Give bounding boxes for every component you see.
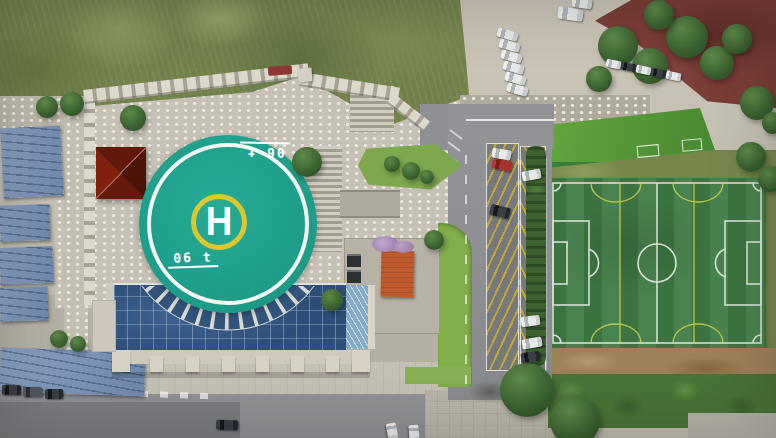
penalty-area-left xyxy=(553,221,589,305)
car xyxy=(2,385,21,396)
facade-corner xyxy=(352,350,370,372)
tree xyxy=(736,142,766,172)
pitch-markings xyxy=(548,178,766,348)
car xyxy=(408,425,419,438)
large-tree xyxy=(550,396,600,438)
atrium-west-annex xyxy=(92,300,116,352)
car xyxy=(216,420,238,430)
penalty-arc-left xyxy=(589,249,599,277)
weight-marking-top-rotated: 06 t xyxy=(240,142,290,161)
penalty-area-right xyxy=(725,221,761,305)
tree xyxy=(70,336,86,352)
red-bench xyxy=(268,65,293,76)
rooftop-unit xyxy=(637,144,660,158)
facade-pillar xyxy=(150,356,163,372)
west-boundary-wall xyxy=(84,100,95,305)
facade-pillar xyxy=(186,356,199,372)
bush xyxy=(424,230,444,250)
aerial-photo: H 06 t 06 t xyxy=(0,0,776,438)
bush xyxy=(384,156,400,172)
tree xyxy=(586,66,612,92)
facade-pillar xyxy=(326,356,339,372)
bush xyxy=(321,289,343,311)
tree xyxy=(292,147,322,177)
penalty-arc-right xyxy=(715,249,725,277)
blue-shed-roof xyxy=(0,125,64,198)
facade-pillar xyxy=(256,356,269,372)
blue-shed-roof xyxy=(0,204,51,242)
tree xyxy=(722,24,752,54)
bush xyxy=(402,162,420,180)
road-shadow xyxy=(0,402,240,438)
tree xyxy=(50,330,68,348)
facade-corner xyxy=(112,350,130,372)
orange-tiled-structure xyxy=(381,251,415,298)
facade-pillar xyxy=(222,356,235,372)
tree xyxy=(666,16,708,58)
rooftop-unit xyxy=(682,138,703,152)
helipad-h-marking: H xyxy=(198,196,240,246)
glass-atrium-east-wing xyxy=(346,285,368,349)
tree xyxy=(120,105,146,131)
car xyxy=(23,387,42,397)
atrium-east-frame xyxy=(368,285,375,349)
weight-marking-bottom: 06 t xyxy=(168,249,219,269)
tree xyxy=(36,96,58,118)
facade-pillar xyxy=(291,356,304,372)
wall-tower xyxy=(297,67,312,82)
football-field xyxy=(548,178,766,348)
rooftop-vent-unit xyxy=(347,254,361,267)
facade-shadow xyxy=(112,372,370,378)
corner-pavement xyxy=(688,413,776,438)
bush xyxy=(420,170,434,184)
blue-shed-roof xyxy=(0,246,54,285)
tree xyxy=(644,0,674,30)
goal-area-right xyxy=(747,242,761,284)
car xyxy=(45,389,63,399)
pavilion-ridge xyxy=(96,147,146,199)
tree xyxy=(60,92,84,116)
large-tree xyxy=(500,363,554,417)
purple-blossom-tree xyxy=(392,241,414,253)
blue-shed-roof xyxy=(0,286,49,322)
walkway-bridge xyxy=(340,190,400,218)
rooftop-vent-unit xyxy=(347,270,361,283)
